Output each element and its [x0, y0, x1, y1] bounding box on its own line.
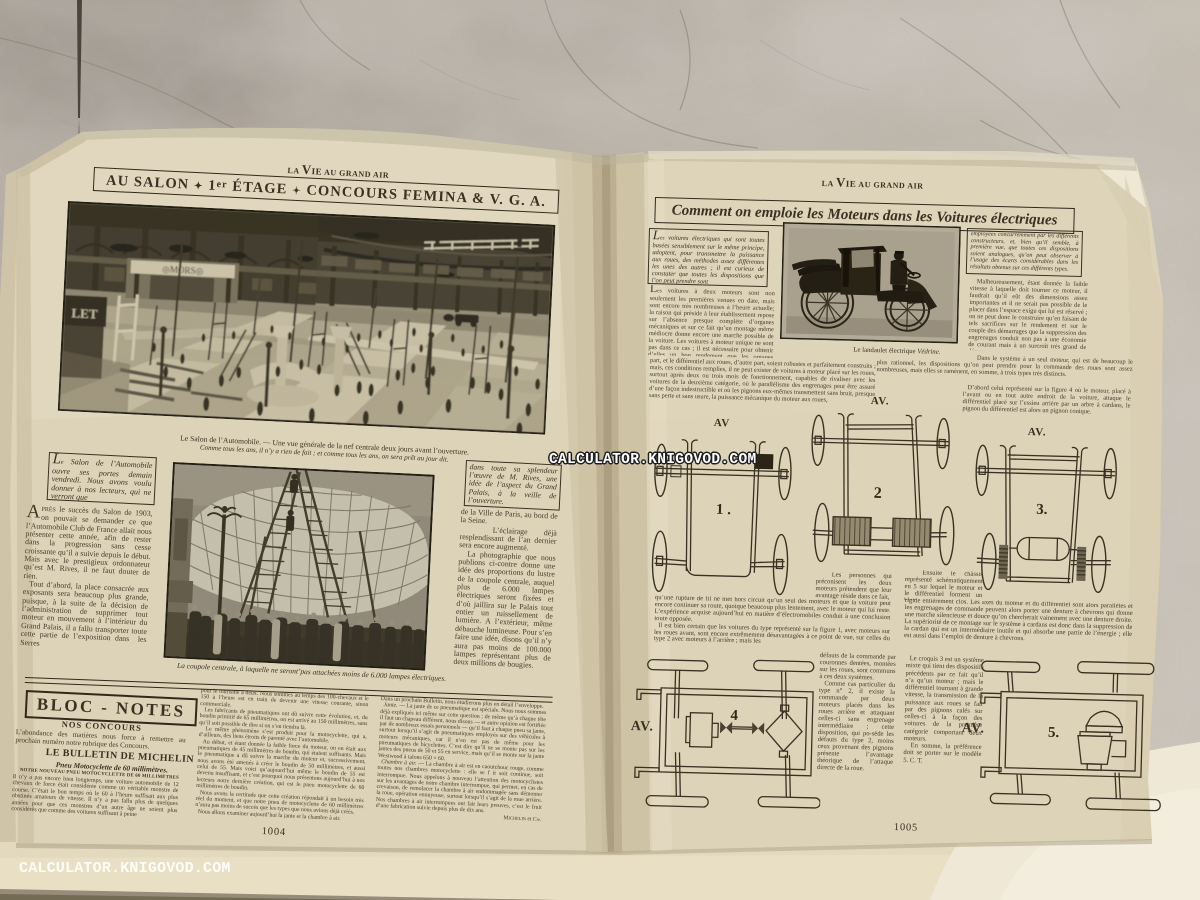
svg-text:5.: 5. — [1048, 725, 1060, 741]
svg-text:4: 4 — [730, 708, 738, 724]
svg-text:2: 2 — [874, 485, 882, 502]
svg-text:3.: 3. — [1036, 502, 1048, 518]
svg-text:1 .: 1 . — [716, 502, 732, 518]
